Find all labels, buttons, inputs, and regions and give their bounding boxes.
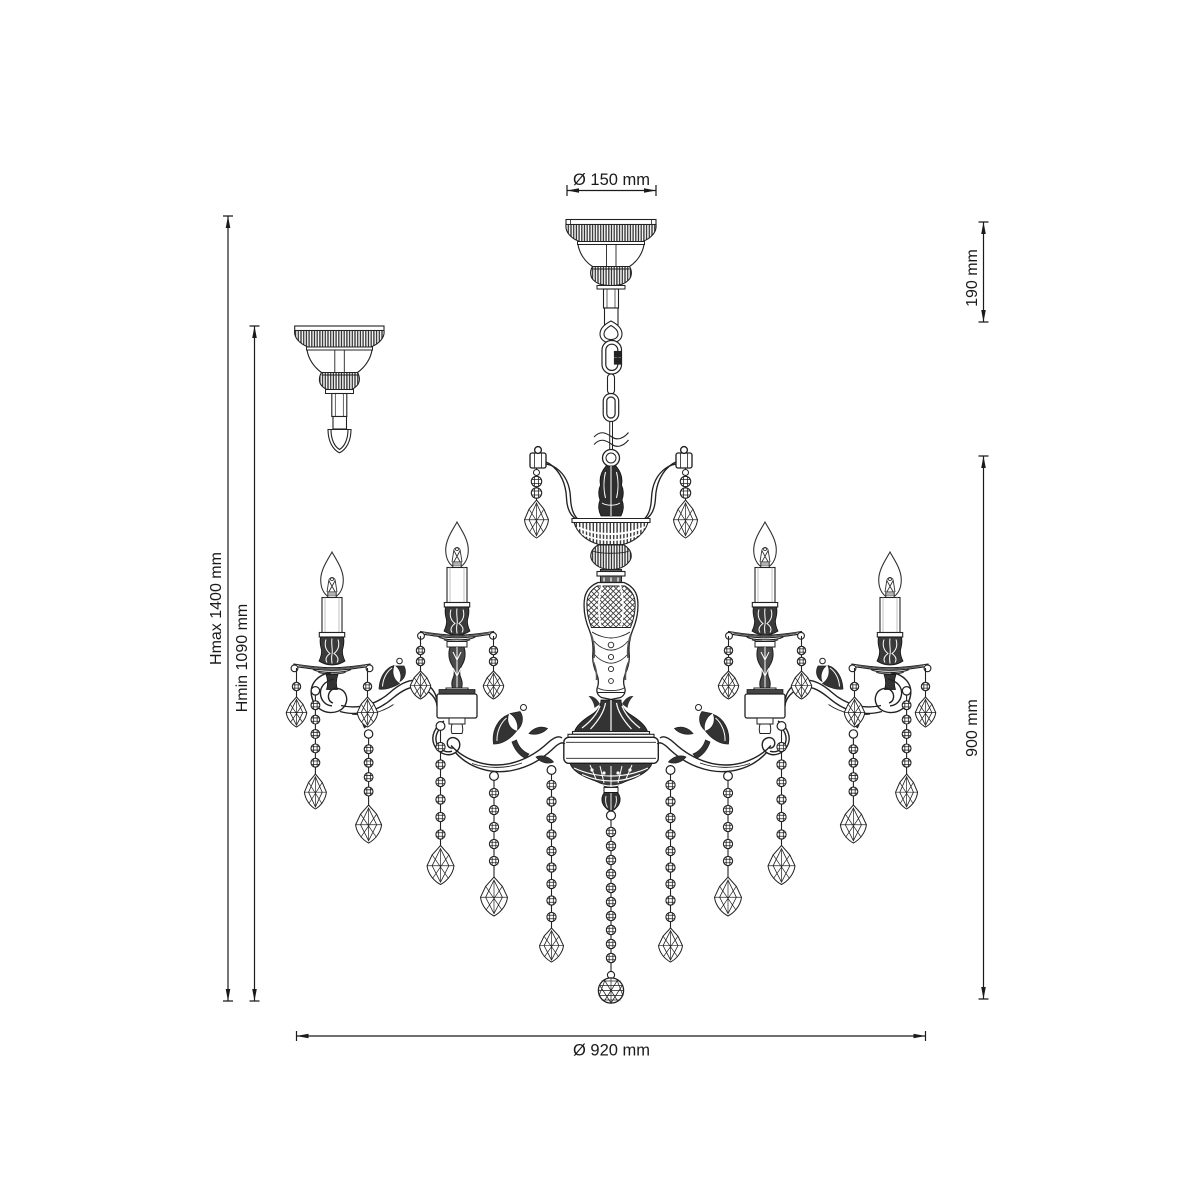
- svg-text:190 mm: 190 mm: [964, 249, 981, 307]
- svg-text:Ø 150 mm: Ø 150 mm: [573, 171, 650, 189]
- svg-text:Hmin 1090 mm: Hmin 1090 mm: [234, 604, 251, 712]
- svg-text:Hmax 1400 mm: Hmax 1400 mm: [208, 552, 225, 665]
- svg-text:Ø 920 mm: Ø 920 mm: [573, 1042, 650, 1060]
- svg-text:900 mm: 900 mm: [964, 699, 981, 757]
